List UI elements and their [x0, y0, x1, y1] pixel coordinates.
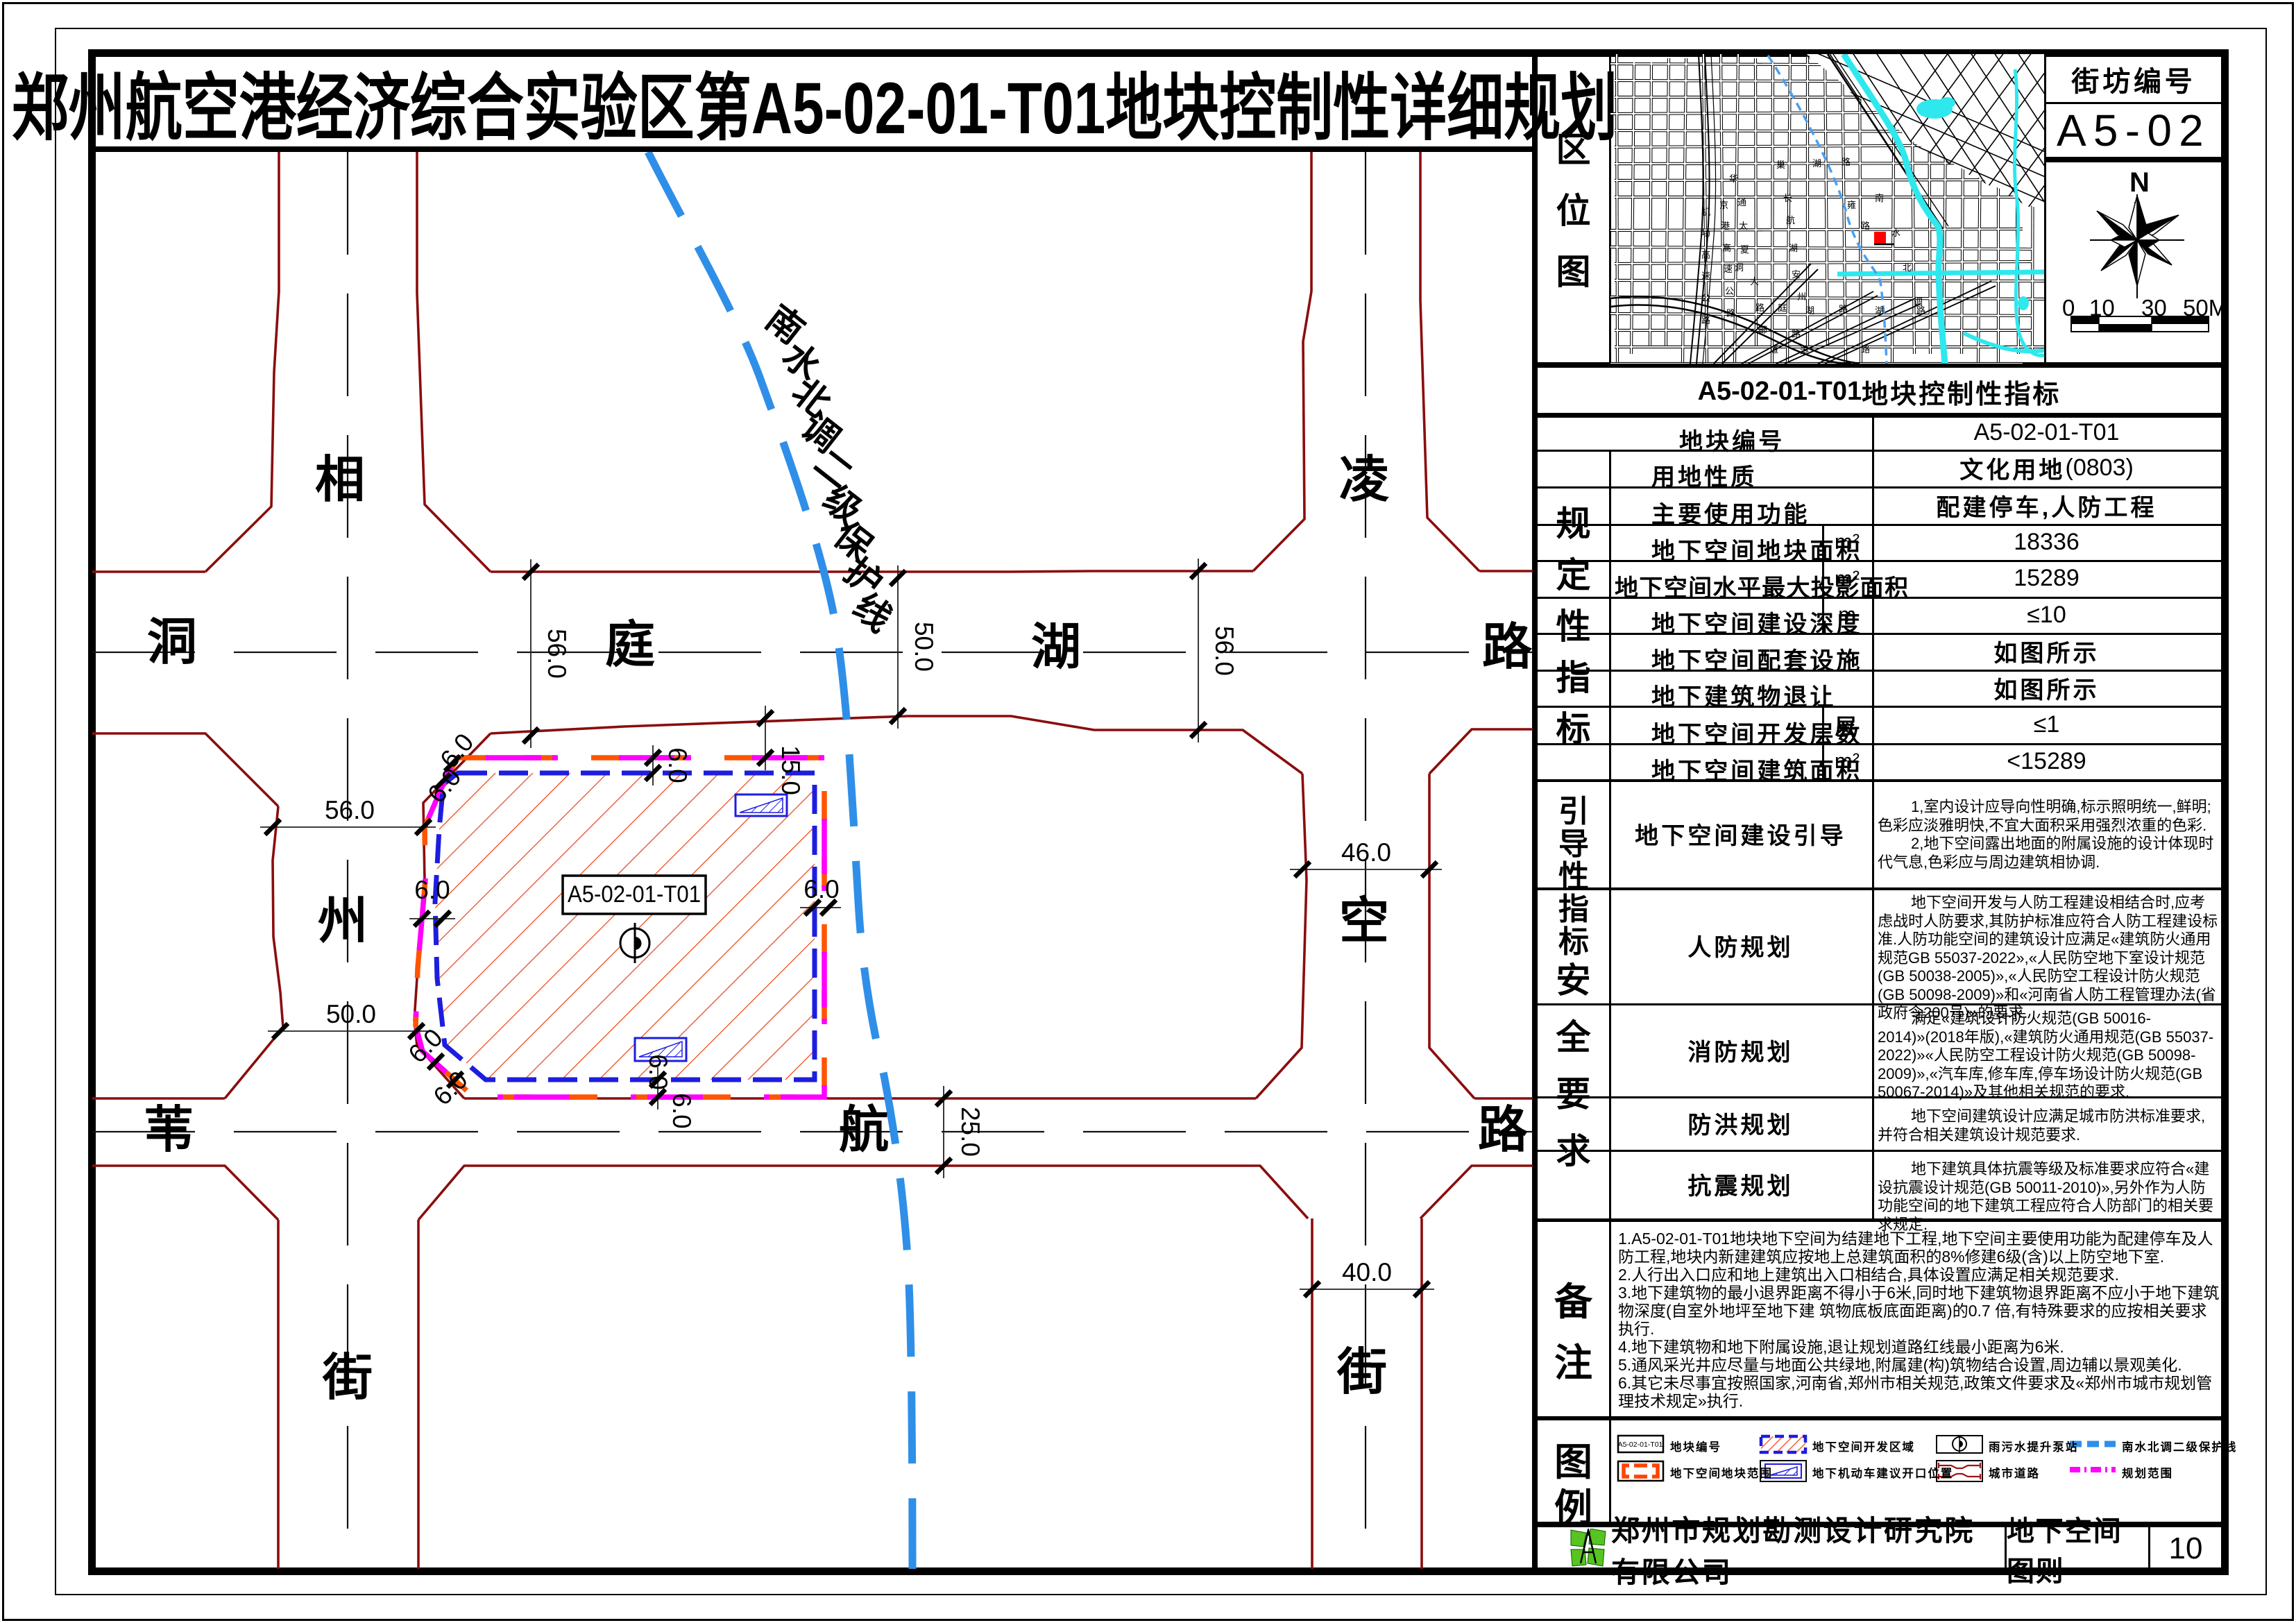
svg-text:6.0: 6.0	[402, 1023, 448, 1068]
svg-text:凌: 凌	[1339, 452, 1389, 508]
svg-text:6.0: 6.0	[427, 1065, 473, 1110]
svg-text:街: 街	[1336, 1345, 1387, 1400]
svg-text:湖: 湖	[1031, 620, 1081, 675]
svg-text:机: 机	[1701, 207, 1710, 217]
svg-text:相: 相	[315, 452, 365, 508]
svg-text:街: 街	[322, 1350, 373, 1406]
svg-text:长: 长	[1783, 193, 1792, 203]
svg-text:路: 路	[1701, 315, 1710, 325]
svg-text:庭: 庭	[1778, 303, 1787, 313]
svg-text:N: N	[2129, 167, 2150, 198]
svg-text:通: 通	[1737, 197, 1746, 207]
svg-text:邮: 邮	[1758, 325, 1767, 335]
svg-text:场: 场	[1701, 228, 1710, 238]
svg-text:公: 公	[1725, 286, 1734, 296]
svg-text:湖: 湖	[1789, 243, 1798, 253]
svg-text:巢: 巢	[1776, 160, 1785, 170]
svg-text:洞: 洞	[1735, 262, 1744, 273]
svg-text:南: 南	[1875, 193, 1884, 203]
svg-text:A5-02-01-T01: A5-02-01-T01	[568, 881, 701, 908]
svg-text:太: 太	[1739, 221, 1748, 231]
svg-text:路: 路	[1842, 157, 1851, 167]
svg-text:路: 路	[1861, 344, 1870, 355]
svg-text:速: 速	[1724, 264, 1733, 274]
svg-text:路: 路	[1839, 304, 1848, 314]
svg-text:50.0: 50.0	[910, 622, 938, 672]
svg-text:15.0: 15.0	[776, 745, 805, 795]
svg-text:A5-02-01-T01: A5-02-01-T01	[1618, 1441, 1663, 1449]
svg-text:40.0: 40.0	[1342, 1258, 1392, 1286]
svg-text:路: 路	[1755, 303, 1764, 313]
svg-text:京: 京	[1719, 200, 1728, 210]
svg-text:华: 华	[1729, 173, 1738, 184]
svg-text:路: 路	[1482, 620, 1533, 675]
svg-text:庭: 庭	[605, 618, 655, 673]
svg-text:6.0: 6.0	[414, 876, 450, 904]
svg-text:56.0: 56.0	[325, 796, 375, 824]
svg-text:公: 公	[1701, 293, 1710, 303]
svg-text:北: 北	[1903, 262, 1912, 273]
svg-text:苇: 苇	[144, 1103, 194, 1158]
svg-text:6.0: 6.0	[663, 747, 692, 783]
svg-text:州: 州	[318, 894, 368, 949]
svg-text:速: 速	[1701, 271, 1710, 281]
svg-text:水: 水	[1891, 228, 1900, 238]
svg-text:高: 高	[1722, 243, 1731, 253]
svg-text:雍: 雍	[1847, 200, 1856, 210]
svg-text:湖: 湖	[1812, 158, 1821, 169]
svg-text:夏: 夏	[1740, 244, 1749, 255]
svg-text:路: 路	[1726, 308, 1735, 318]
svg-text:6.0: 6.0	[803, 875, 839, 903]
svg-text:大: 大	[1750, 276, 1759, 287]
svg-text:56.0: 56.0	[1210, 626, 1239, 676]
svg-text:航: 航	[839, 1103, 889, 1158]
svg-text:6.0: 6.0	[667, 1093, 696, 1128]
svg-text:空: 空	[1339, 894, 1389, 949]
svg-text:路: 路	[1916, 305, 1925, 316]
svg-text:56.0: 56.0	[543, 629, 571, 679]
svg-text:50.0: 50.0	[326, 1000, 376, 1028]
svg-text:洞: 洞	[147, 615, 197, 670]
svg-text:46.0: 46.0	[1341, 838, 1391, 867]
svg-text:州: 州	[1797, 291, 1806, 302]
svg-text:路: 路	[1861, 221, 1870, 231]
svg-text:6.0: 6.0	[644, 1054, 672, 1089]
svg-text:湖: 湖	[1875, 305, 1884, 316]
svg-text:路: 路	[1478, 1103, 1529, 1158]
svg-text:安: 安	[1792, 269, 1801, 280]
svg-text:港: 港	[1800, 346, 1809, 356]
svg-text:道: 道	[1769, 344, 1778, 355]
svg-text:25.0: 25.0	[956, 1107, 985, 1157]
svg-text:高: 高	[1701, 250, 1710, 260]
svg-text:航: 航	[1786, 215, 1795, 226]
svg-text:港: 港	[1721, 221, 1730, 231]
svg-text:湖: 湖	[1805, 305, 1814, 316]
svg-text:路: 路	[1792, 329, 1801, 339]
